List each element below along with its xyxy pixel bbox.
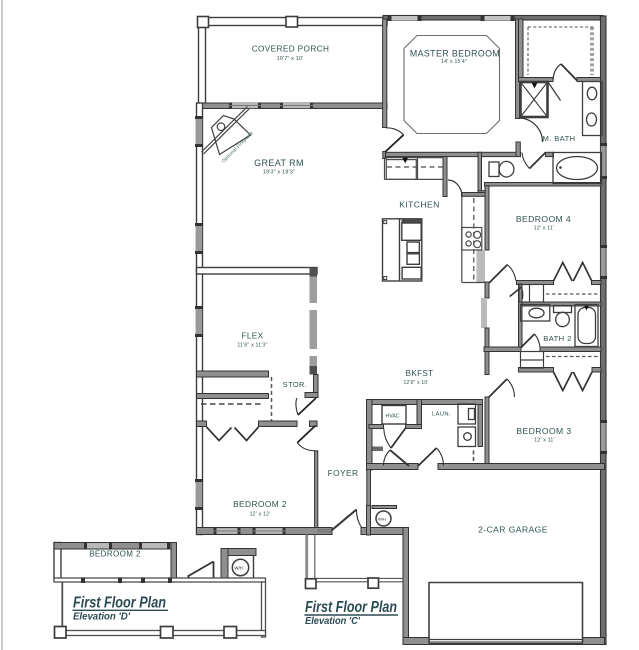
svg-text:12' x 11': 12' x 11' bbox=[534, 226, 554, 232]
svg-text:W/H: W/H bbox=[378, 517, 386, 522]
svg-text:First Floor Plan: First Floor Plan bbox=[305, 599, 397, 616]
svg-text:First Floor Plan: First Floor Plan bbox=[73, 595, 166, 612]
svg-text:GREAT RM: GREAT RM bbox=[254, 158, 304, 168]
svg-text:12' x 12': 12' x 12' bbox=[250, 512, 271, 518]
svg-text:BEDROOM 2: BEDROOM 2 bbox=[89, 550, 141, 559]
svg-text:HVAC: HVAC bbox=[386, 414, 400, 420]
svg-text:Elevation 'D': Elevation 'D' bbox=[73, 612, 131, 623]
svg-text:19'3" x 18'3": 19'3" x 18'3" bbox=[263, 170, 295, 176]
svg-text:LAUN.: LAUN. bbox=[432, 412, 451, 418]
svg-text:2-CAR GARAGE: 2-CAR GARAGE bbox=[478, 525, 548, 535]
svg-text:BATH 2: BATH 2 bbox=[543, 334, 571, 343]
svg-text:BEDROOM 4: BEDROOM 4 bbox=[516, 214, 571, 224]
svg-text:12'6" x 10': 12'6" x 10' bbox=[403, 380, 428, 386]
svg-text:FOYER: FOYER bbox=[328, 468, 359, 478]
svg-text:STOR.: STOR. bbox=[283, 380, 307, 389]
svg-text:BKFST: BKFST bbox=[406, 369, 434, 378]
svg-text:MASTER BEDROOM: MASTER BEDROOM bbox=[410, 49, 500, 59]
svg-text:COVERED PORCH: COVERED PORCH bbox=[252, 45, 330, 54]
svg-text:W/H: W/H bbox=[235, 566, 243, 571]
svg-text:14' x 15'4": 14' x 15'4" bbox=[441, 59, 467, 65]
svg-text:12' x 11': 12' x 11' bbox=[534, 438, 554, 444]
svg-text:FLEX: FLEX bbox=[241, 332, 263, 341]
svg-text:M. BATH: M. BATH bbox=[542, 134, 575, 143]
svg-text:KITCHEN: KITCHEN bbox=[399, 200, 440, 210]
svg-text:Elevation 'C': Elevation 'C' bbox=[305, 616, 361, 627]
svg-text:11'6" x 11'3": 11'6" x 11'3" bbox=[237, 343, 267, 349]
svg-text:BEDROOM 3: BEDROOM 3 bbox=[516, 426, 571, 436]
svg-text:19'7" x 10': 19'7" x 10' bbox=[277, 56, 304, 62]
svg-text:BEDROOM 2: BEDROOM 2 bbox=[233, 499, 287, 509]
